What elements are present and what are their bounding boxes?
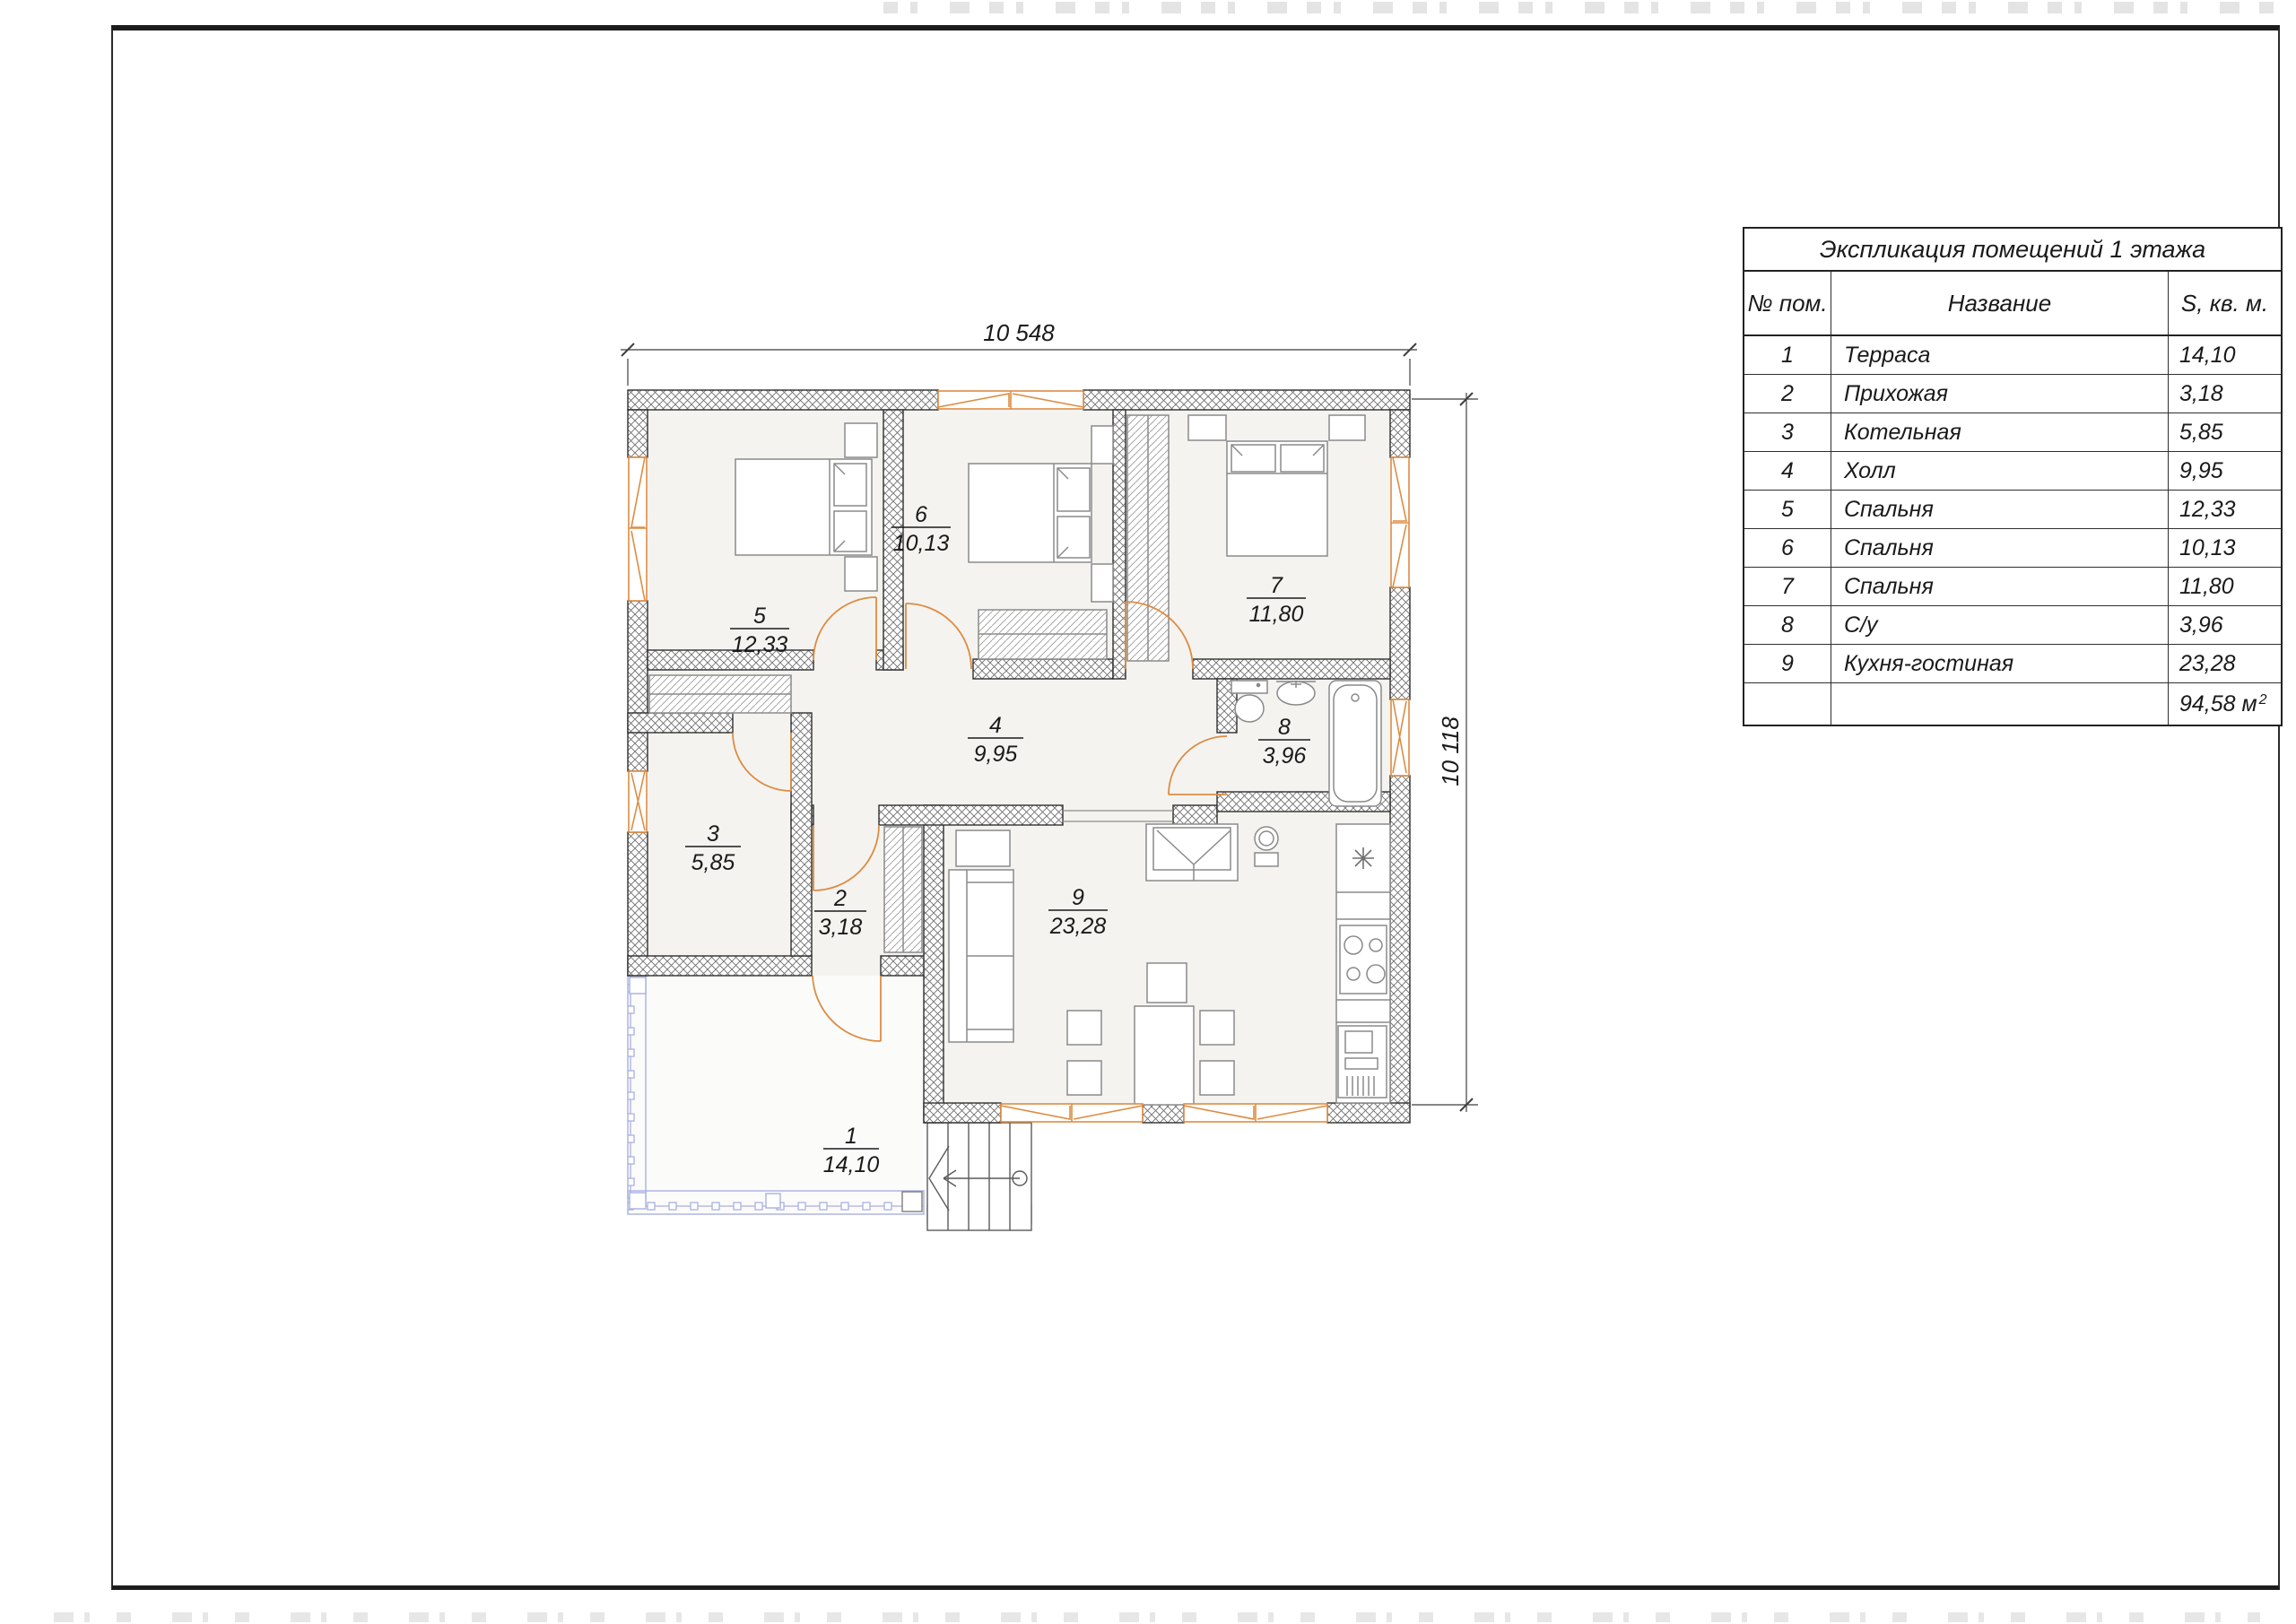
table-title: Экспликация помещений 1 этажа bbox=[1744, 229, 2281, 272]
total-area: 94,58 м2 bbox=[2169, 683, 2281, 725]
nightstand bbox=[845, 557, 877, 591]
total-area-sup: 2 bbox=[2259, 692, 2267, 708]
bathtub bbox=[1329, 681, 1381, 806]
console-table bbox=[956, 830, 1010, 866]
cell-area: 23,28 bbox=[2169, 645, 2281, 682]
svg-text:9,95: 9,95 bbox=[974, 742, 1018, 767]
column-header-name: Название bbox=[1831, 272, 2169, 334]
wardrobe-room-6 bbox=[978, 610, 1107, 659]
table-row: 1 Терраса 14,10 bbox=[1744, 336, 2281, 375]
cell-number: 3 bbox=[1744, 413, 1831, 451]
window-room8-right bbox=[1391, 699, 1409, 776]
table-row: 4 Холл 9,95 bbox=[1744, 452, 2281, 491]
cell-area: 10,13 bbox=[2169, 529, 2281, 567]
chair bbox=[1200, 1061, 1234, 1095]
column-header-area: S, кв. м. bbox=[2169, 272, 2281, 334]
cell-empty bbox=[1831, 683, 2169, 725]
table-row: 7 Спальня 11,80 bbox=[1744, 568, 2281, 606]
chair bbox=[1200, 1011, 1234, 1045]
svg-text:4: 4 bbox=[989, 713, 1002, 738]
cell-area: 5,85 bbox=[2169, 413, 2281, 451]
fridge-icon bbox=[1352, 847, 1374, 869]
window-room3-left bbox=[629, 771, 647, 832]
dining-table bbox=[1135, 1006, 1194, 1105]
wardrobe-room-7 bbox=[1127, 415, 1169, 661]
window-kitchen-bottom-right bbox=[1184, 1104, 1327, 1122]
table-row: 6 Спальня 10,13 bbox=[1744, 529, 2281, 568]
svg-text:10 118: 10 118 bbox=[1437, 716, 1464, 786]
svg-text:8: 8 bbox=[1278, 715, 1291, 740]
cell-area: 9,95 bbox=[2169, 452, 2281, 490]
table-row: 9 Кухня-гостиная 23,28 bbox=[1744, 645, 2281, 683]
window-room5-left bbox=[629, 457, 647, 601]
svg-text:14,10: 14,10 bbox=[823, 1152, 880, 1177]
nightstand bbox=[1329, 415, 1365, 440]
cell-name: Котельная bbox=[1831, 413, 2169, 451]
kitchen-counter bbox=[1336, 824, 1390, 1103]
svg-text:9: 9 bbox=[1072, 885, 1084, 910]
cell-name: С/у bbox=[1831, 606, 2169, 644]
cell-number: 2 bbox=[1744, 375, 1831, 413]
svg-text:11,80: 11,80 bbox=[1249, 602, 1304, 627]
cell-area: 3,96 bbox=[2169, 606, 2281, 644]
window-room7-right bbox=[1391, 457, 1409, 587]
svg-text:3,96: 3,96 bbox=[1263, 743, 1307, 769]
cell-name: Кухня-гостиная bbox=[1831, 645, 2169, 682]
cell-name: Прихожая bbox=[1831, 375, 2169, 413]
cell-name: Спальня bbox=[1831, 529, 2169, 567]
nightstand bbox=[845, 423, 877, 457]
cropped-text-artifact-bottom bbox=[54, 1612, 2260, 1622]
cell-empty bbox=[1744, 683, 1831, 725]
table-row: 5 Спальня 12,33 bbox=[1744, 491, 2281, 529]
cropped-text-artifact-top bbox=[883, 2, 2283, 13]
cell-area: 14,10 bbox=[2169, 336, 2281, 374]
fireplace bbox=[1146, 824, 1238, 881]
svg-text:7: 7 bbox=[1270, 573, 1283, 598]
closet-hall bbox=[649, 675, 791, 713]
svg-text:1: 1 bbox=[845, 1124, 857, 1149]
drawing-page: { "dimensions": { "top": "10 548", "righ… bbox=[0, 0, 2296, 1624]
table-total-row: 94,58 м2 bbox=[1744, 683, 2281, 725]
floor-plan: 10 548 10 118 1 14,10 2 3,18 3 5,85 4 9,… bbox=[619, 309, 1516, 1282]
cell-name: Терраса bbox=[1831, 336, 2169, 374]
cell-name: Спальня bbox=[1831, 491, 2169, 528]
total-area-value: 94,58 м bbox=[2179, 691, 2257, 717]
svg-text:12,33: 12,33 bbox=[732, 632, 788, 657]
cooktop bbox=[1340, 925, 1387, 994]
chair bbox=[1067, 1061, 1101, 1095]
svg-text:2: 2 bbox=[833, 886, 847, 911]
window-room6-top bbox=[938, 391, 1083, 409]
stairs bbox=[927, 1123, 1031, 1230]
toilet bbox=[1231, 681, 1267, 722]
column-header-number: № пом. bbox=[1744, 272, 1831, 334]
boiler bbox=[1255, 827, 1278, 866]
table-row: 3 Котельная 5,85 bbox=[1744, 413, 2281, 452]
room-schedule-table: Экспликация помещений 1 этажа № пом. Наз… bbox=[1743, 227, 2283, 726]
svg-text:6: 6 bbox=[915, 502, 927, 527]
svg-text:5,85: 5,85 bbox=[691, 850, 735, 875]
svg-text:23,28: 23,28 bbox=[1049, 914, 1107, 939]
kitchen-sink-unit bbox=[1338, 1026, 1387, 1098]
cell-number: 9 bbox=[1744, 645, 1831, 682]
chair bbox=[1067, 1011, 1101, 1045]
svg-text:3: 3 bbox=[707, 821, 719, 847]
cell-number: 8 bbox=[1744, 606, 1831, 644]
window-kitchen-bottom-left bbox=[1001, 1104, 1143, 1122]
cell-area: 12,33 bbox=[2169, 491, 2281, 528]
table-row: 8 С/у 3,96 bbox=[1744, 606, 2281, 645]
cell-number: 6 bbox=[1744, 529, 1831, 567]
nightstand bbox=[1091, 426, 1113, 464]
table-row: 2 Прихожая 3,18 bbox=[1744, 375, 2281, 413]
wardrobe-room-2 bbox=[884, 827, 922, 952]
svg-text:5: 5 bbox=[753, 604, 766, 629]
dimension-right: 10 118 bbox=[1412, 393, 1478, 1112]
nightstand bbox=[1091, 564, 1113, 602]
svg-text:3,18: 3,18 bbox=[819, 915, 863, 940]
cell-number: 7 bbox=[1744, 568, 1831, 605]
svg-text:10 548: 10 548 bbox=[983, 319, 1055, 346]
cell-number: 5 bbox=[1744, 491, 1831, 528]
chair bbox=[1147, 963, 1187, 1003]
nightstand bbox=[1188, 415, 1226, 440]
cell-area: 11,80 bbox=[2169, 568, 2281, 605]
cell-area: 3,18 bbox=[2169, 375, 2281, 413]
cell-name: Спальня bbox=[1831, 568, 2169, 605]
sofa bbox=[949, 870, 1013, 1042]
cell-number: 1 bbox=[1744, 336, 1831, 374]
dimension-top: 10 548 bbox=[621, 319, 1417, 386]
cell-number: 4 bbox=[1744, 452, 1831, 490]
svg-text:10,13: 10,13 bbox=[893, 531, 950, 556]
cell-name: Холл bbox=[1831, 452, 2169, 490]
table-header-row: № пом. Название S, кв. м. bbox=[1744, 272, 2281, 336]
